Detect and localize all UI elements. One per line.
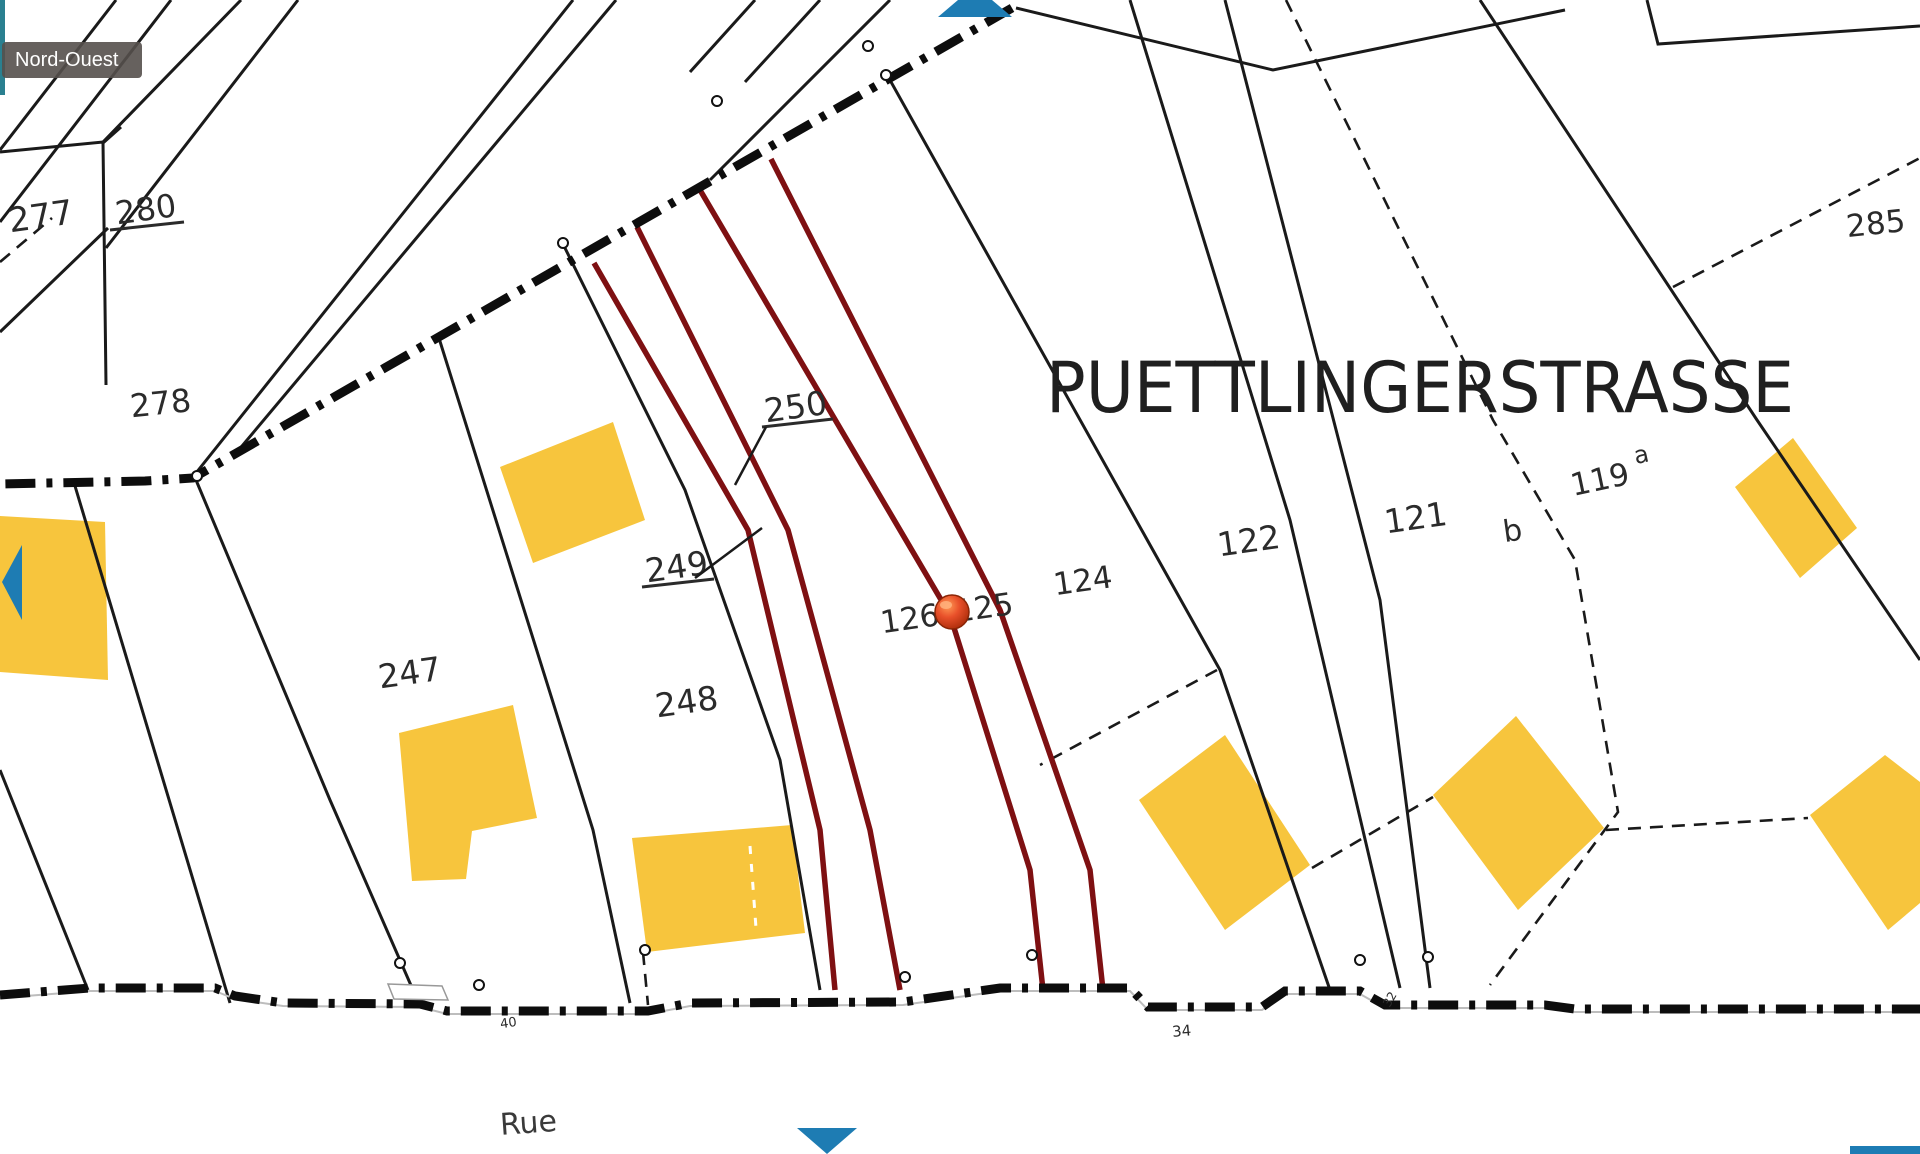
building [1139, 735, 1310, 930]
pan-down-arrow[interactable] [797, 1128, 857, 1154]
parcel-line [237, 0, 616, 452]
parcel-280-outline [0, 142, 106, 385]
parcel-line-dashed [1040, 670, 1217, 765]
marker-highlight [940, 601, 952, 609]
boundary-point [881, 70, 891, 80]
direction-tooltip-text: Nord-Ouest [15, 49, 118, 71]
municipal-boundaries [0, 8, 1920, 1014]
parcel-line-dashed [1312, 797, 1433, 868]
boundary-point [474, 980, 484, 990]
parcel-line [1647, 0, 1920, 44]
building [500, 422, 645, 563]
parcel-line [196, 0, 573, 473]
boundary-street [0, 988, 1920, 1011]
parcel-label-119: 119 [1567, 456, 1632, 504]
boundary-point [863, 41, 873, 51]
boundary-point [558, 238, 568, 248]
parcel-line [745, 0, 820, 82]
parcel-label-126: 126 [878, 597, 942, 641]
parcel-label-121: 121 [1382, 494, 1450, 541]
building-l-shape [399, 705, 537, 881]
parcel-line-dashed [643, 952, 648, 1005]
street-name-main: PUETTLINGERSTRASSE [1046, 347, 1794, 429]
parcel-line-dashed [1606, 818, 1808, 830]
boundary-point [900, 972, 910, 982]
boundary-point [1027, 950, 1037, 960]
parcel-label-277: 277 [6, 193, 76, 242]
parcel-line [0, 228, 108, 332]
parcel-line [196, 480, 413, 990]
building-footprints [0, 422, 1920, 952]
map-marker[interactable] [935, 595, 969, 629]
boundary-point [1423, 952, 1433, 962]
direction-tooltip: Nord-Ouest [2, 42, 142, 78]
parcel-lines-main [0, 0, 1920, 1005]
parcel-line [1016, 8, 1565, 70]
marker-dot[interactable] [935, 595, 969, 629]
parcel-line [1480, 0, 1920, 660]
pan-up-arrow[interactable] [938, 0, 1012, 17]
boundary-point [640, 945, 650, 955]
building [1735, 438, 1857, 578]
pan-controls [2, 0, 1012, 1154]
parcel-label-247: 247 [376, 649, 444, 696]
parcel-line [710, 0, 890, 180]
parcel-label-285: 285 [1844, 203, 1907, 245]
parcel-label-122: 122 [1215, 517, 1283, 564]
building [1810, 755, 1920, 930]
parcel-label-b: b [1501, 513, 1525, 550]
parcel-line [0, 770, 88, 990]
parcel-label-278: 278 [128, 381, 193, 425]
boundary-gap [388, 984, 448, 1000]
parcel-line [690, 0, 755, 72]
boundary-point [192, 471, 202, 481]
corner-widget-bar[interactable] [1850, 1146, 1920, 1154]
measure-34: 34 [1171, 1021, 1192, 1041]
cadastral-map[interactable]: 277 280 278 247 248 249 250 126 125 124 … [0, 0, 1920, 1154]
street-name-bottom: Rue [499, 1104, 558, 1143]
map-viewport[interactable]: 277 280 278 247 248 249 250 126 125 124 … [0, 0, 1920, 1154]
boundary-point [1355, 955, 1365, 965]
building [632, 825, 805, 952]
parcel-label-119-suffix: a [1631, 439, 1651, 469]
parcel-label-248: 248 [653, 678, 721, 725]
parcel-label-124: 124 [1051, 559, 1115, 603]
parcel-line [75, 486, 230, 1003]
measure-40: 40 [499, 1015, 517, 1032]
boundary-point [712, 96, 722, 106]
parcel-line [0, 0, 171, 222]
boundary-point [395, 958, 405, 968]
building [1433, 716, 1604, 910]
corner-tick [103, 127, 121, 143]
